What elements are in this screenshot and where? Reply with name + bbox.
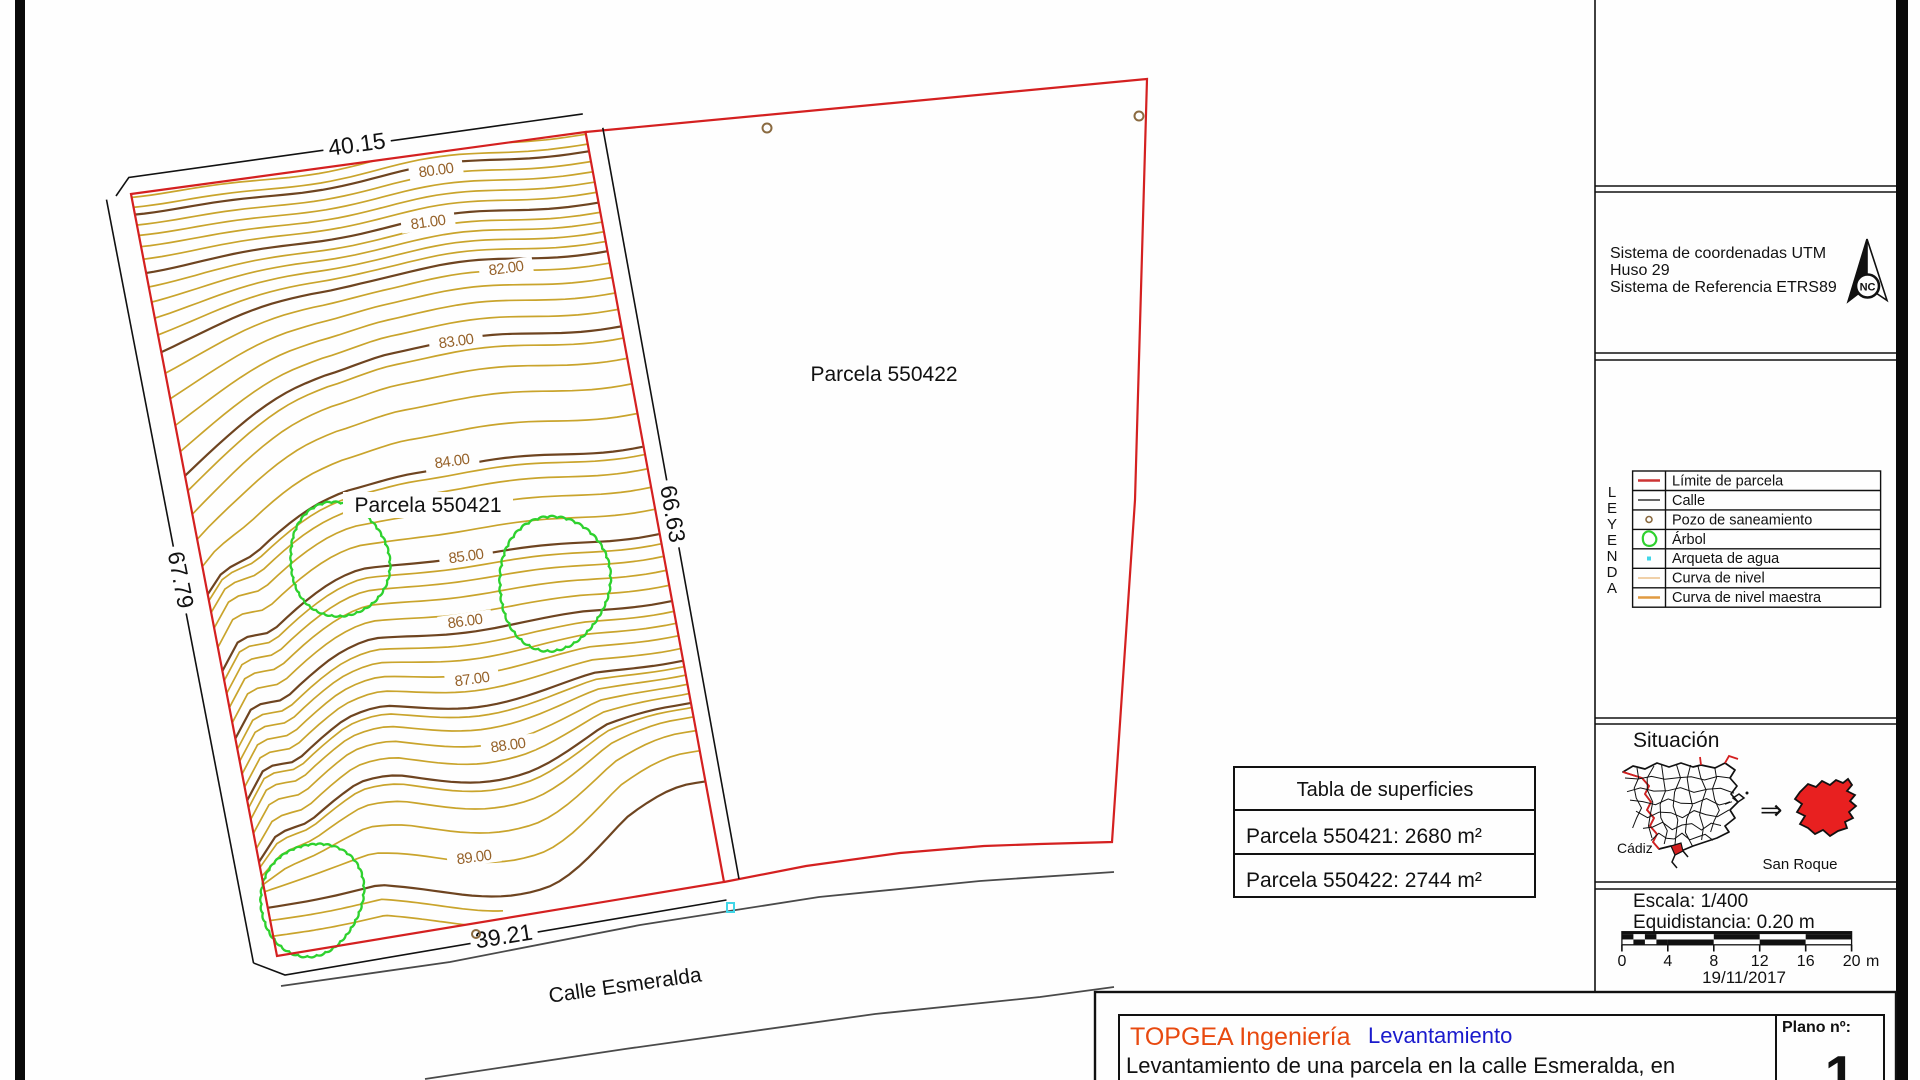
svg-text:4: 4 — [1663, 953, 1672, 970]
svg-text:Plano nº:: Plano nº: — [1782, 1019, 1851, 1036]
svg-text:Situación: Situación — [1633, 729, 1719, 752]
svg-text:m: m — [1866, 953, 1879, 970]
svg-text:19/11/2017: 19/11/2017 — [1702, 968, 1786, 987]
svg-text:20: 20 — [1843, 953, 1861, 970]
svg-text:Cádiz: Cádiz — [1617, 840, 1653, 856]
svg-text:Curva de nivel: Curva de nivel — [1672, 571, 1765, 587]
svg-text:0: 0 — [1617, 953, 1626, 970]
svg-text:L: L — [1608, 484, 1616, 501]
svg-text:Sistema de Referencia ETRS89: Sistema de Referencia ETRS89 — [1610, 279, 1837, 296]
svg-text:E: E — [1607, 532, 1617, 549]
svg-text:Escala: 1/400: Escala: 1/400 — [1633, 891, 1748, 912]
svg-text:Calle: Calle — [1672, 493, 1705, 509]
svg-text:Límite de parcela: Límite de parcela — [1672, 473, 1784, 489]
svg-text:Pozo de saneamiento: Pozo de saneamiento — [1672, 512, 1812, 528]
svg-text:TOPGEA Ingeniería: TOPGEA Ingeniería — [1130, 1023, 1351, 1051]
svg-text:Arqueta de agua: Arqueta de agua — [1672, 551, 1780, 567]
svg-text:Huso 29: Huso 29 — [1610, 262, 1670, 279]
svg-text:1: 1 — [1825, 1044, 1856, 1080]
svg-text:E: E — [1607, 500, 1617, 517]
svg-text:Parcela 550422: Parcela 550422 — [810, 363, 957, 386]
svg-text:Tabla de superficies: Tabla de superficies — [1297, 779, 1474, 801]
svg-text:D: D — [1607, 564, 1618, 581]
svg-text:Parcela 550421: 2680 m²: Parcela 550421: 2680 m² — [1246, 825, 1482, 848]
svg-text:⇒: ⇒ — [1760, 795, 1783, 825]
svg-text:Equidistancia: 0.20 m: Equidistancia: 0.20 m — [1633, 912, 1815, 933]
svg-text:San Roque: San Roque — [1762, 856, 1837, 873]
svg-text:Sistema de coordenadas UTM: Sistema de coordenadas UTM — [1610, 245, 1826, 262]
svg-text:Árbol: Árbol — [1672, 531, 1706, 548]
svg-text:16: 16 — [1797, 953, 1815, 970]
svg-text:A: A — [1607, 580, 1617, 597]
svg-text:Levantamiento de una parcela e: Levantamiento de una parcela en la calle… — [1126, 1053, 1675, 1078]
svg-text:NC: NC — [1860, 282, 1876, 294]
svg-text:N: N — [1607, 548, 1618, 565]
svg-text:Levantamiento: Levantamiento — [1368, 1023, 1512, 1048]
svg-text:Parcela 550422: 2744 m²: Parcela 550422: 2744 m² — [1246, 869, 1482, 892]
svg-text:Parcela 550421: Parcela 550421 — [354, 494, 501, 517]
svg-text:Y: Y — [1607, 516, 1617, 533]
svg-text:Curva de nivel maestra: Curva de nivel maestra — [1672, 590, 1822, 606]
